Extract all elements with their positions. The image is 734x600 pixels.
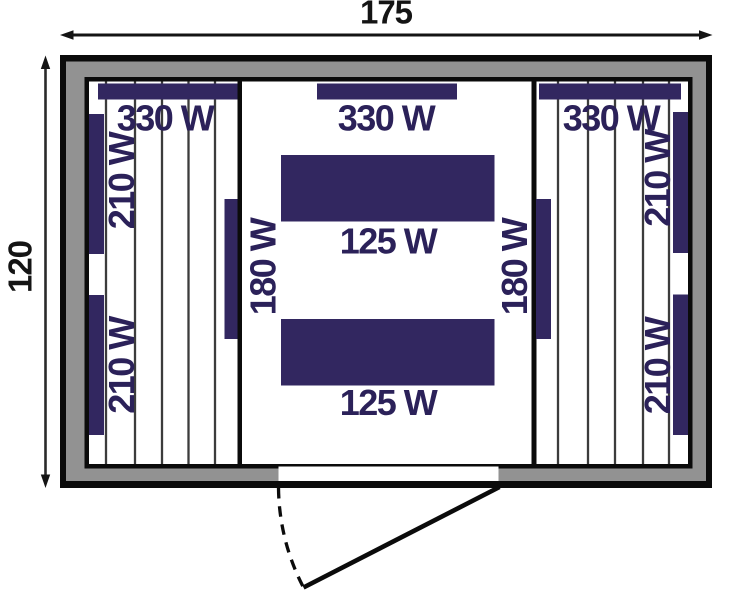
svg-text:175: 175 xyxy=(360,0,413,31)
svg-text:125 W: 125 W xyxy=(340,221,438,262)
svg-text:330 W: 330 W xyxy=(338,98,436,139)
svg-text:125 W: 125 W xyxy=(340,382,438,423)
svg-text:180 W: 180 W xyxy=(243,217,284,315)
svg-text:210 W: 210 W xyxy=(637,129,678,227)
svg-text:210 W: 210 W xyxy=(637,316,678,414)
svg-text:210 W: 210 W xyxy=(101,316,142,414)
svg-text:210 W: 210 W xyxy=(101,131,142,229)
svg-text:120: 120 xyxy=(2,241,39,293)
svg-text:330 W: 330 W xyxy=(117,98,215,139)
svg-text:180 W: 180 W xyxy=(494,217,535,315)
